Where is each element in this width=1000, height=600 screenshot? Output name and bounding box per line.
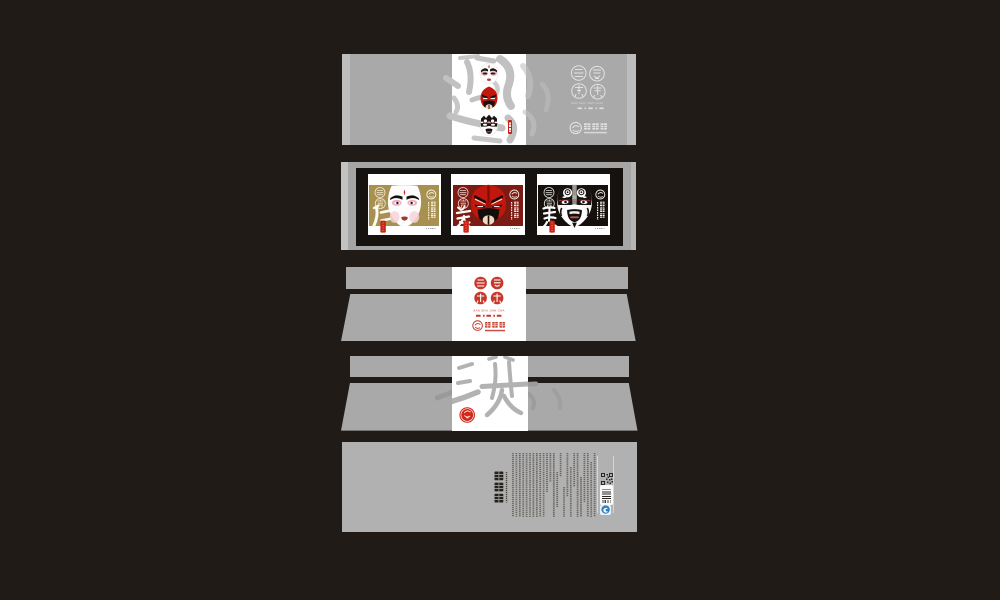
svg-text:SAN SHU JIAN CHA: SAN SHU JIAN CHA — [474, 308, 505, 312]
svg-text:SAN SHU JIAN CHA: SAN SHU JIAN CHA — [571, 101, 603, 105]
